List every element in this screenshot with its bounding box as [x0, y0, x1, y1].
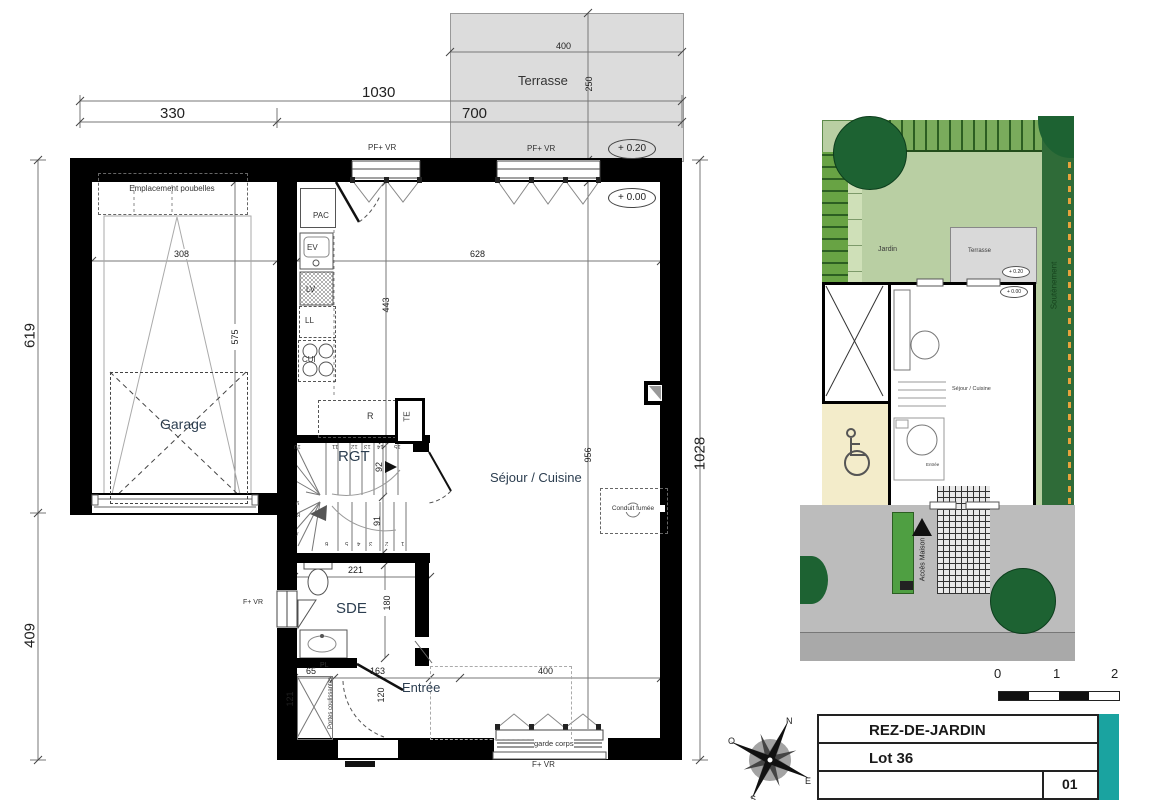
stair-num: 2	[385, 540, 388, 546]
stair-num: 6	[325, 540, 328, 546]
garage-x-box	[110, 372, 248, 504]
dim-1030: 1030	[362, 84, 395, 101]
window-label-bottom: F+ VR	[532, 760, 555, 769]
dim-120: 120	[376, 682, 386, 708]
ev-label: EV	[307, 243, 318, 252]
pac-label: PAC	[313, 211, 329, 220]
sheet-number: 01	[1062, 776, 1078, 792]
scale-seg	[999, 692, 1029, 700]
fridge-box	[318, 400, 396, 438]
dim-92: 92	[374, 456, 384, 478]
window-label-top-1: PF+ VR	[368, 143, 396, 152]
sheet-level-title: REZ-DE-JARDIN	[869, 722, 986, 739]
stair-num: 13	[364, 443, 371, 449]
stair-num: 14	[377, 443, 384, 449]
compass-n: N	[786, 716, 793, 726]
stair-num: 3	[369, 540, 372, 546]
sde-label: SDE	[336, 600, 367, 617]
dim-400-terrace: 400	[556, 41, 571, 51]
scale-bar-segments	[998, 691, 1120, 701]
dim-700: 700	[462, 105, 487, 122]
floor-plan-sheet: Jardin Terrasse + 0.20 + 0.00 Séjour / C…	[0, 0, 1149, 800]
sliding-doors-label: Portes coulissantes	[328, 672, 334, 734]
scale-tick-1: 1	[1053, 666, 1060, 681]
scale-seg	[1089, 692, 1119, 700]
living-label: Séjour / Cuisine	[490, 470, 582, 485]
dim-91: 91	[372, 510, 382, 532]
dim-956: 956	[583, 442, 593, 468]
elev-ground-oval: + 0.00	[608, 188, 656, 208]
dim-308: 308	[174, 249, 189, 259]
compass-s: S	[750, 794, 756, 800]
scale-tick-0: 0	[994, 666, 1001, 681]
stair-num: 11	[332, 443, 338, 449]
dim-250: 250	[584, 71, 594, 97]
dim-221: 221	[348, 565, 363, 575]
dim-575: 575	[230, 324, 240, 350]
guardrail-label: garde corps	[534, 739, 574, 748]
stair-num: 15	[394, 443, 401, 449]
dim-400-bottom: 400	[538, 666, 553, 676]
dim-409: 409	[22, 616, 39, 656]
rgt-label: RGT	[338, 448, 370, 465]
title-block-row-sheet: 01	[819, 772, 1097, 798]
dim-163: 163	[370, 666, 385, 676]
ll-label: LL	[305, 316, 314, 325]
elev-terrace-oval: + 0.20	[608, 139, 656, 159]
scale-tick-2: 2	[1111, 666, 1118, 681]
cui-label: CUI	[302, 355, 316, 364]
dim-180: 180	[382, 590, 392, 616]
bins-label: Emplacement poubelles	[100, 184, 244, 193]
compass-e: E	[805, 776, 811, 786]
entry-label: Entrée	[402, 680, 440, 695]
bins-box	[98, 173, 248, 215]
dim-330: 330	[160, 105, 185, 122]
entry-zone-box	[430, 666, 572, 740]
stair-num: 4	[357, 540, 360, 546]
dim-443: 443	[381, 292, 391, 318]
lv-label: LV	[306, 285, 315, 294]
title-block-teal-bar	[1099, 714, 1119, 800]
dim-619: 619	[22, 316, 39, 356]
title-block-row-level: REZ-DE-JARDIN	[819, 716, 1097, 744]
lot-number: Lot 36	[869, 750, 913, 767]
stair-num: 5	[345, 540, 348, 546]
pl-label: PL	[320, 662, 329, 669]
terrace-label: Terrasse	[518, 73, 568, 88]
scale-seg	[1029, 692, 1059, 700]
conduit-label: Conduit fumée	[601, 505, 665, 512]
sheet-number-cell: 01	[1042, 772, 1099, 798]
stair-num: 10	[294, 443, 301, 449]
scale-bar: 0 1 2	[990, 666, 1130, 706]
stair-num: 12	[351, 443, 358, 449]
stair-num: 9	[296, 499, 299, 505]
fridge-label: R	[367, 411, 374, 421]
dim-1028: 1028	[692, 432, 709, 476]
window-label-shower: F+ VR	[243, 599, 263, 606]
te-label: TE	[403, 408, 412, 426]
title-block: REZ-DE-JARDIN Lot 36 01	[817, 714, 1099, 800]
stair-num: 8	[297, 511, 300, 517]
compass-rose: N O S E	[725, 710, 815, 800]
pac-box	[300, 188, 336, 228]
scale-seg	[1059, 692, 1089, 700]
stair-num: 7	[296, 530, 299, 536]
dim-628: 628	[470, 249, 485, 259]
window-label-top-2: PF+ VR	[527, 144, 555, 153]
dim-65: 65	[306, 666, 316, 676]
garage-label: Garage	[160, 416, 207, 432]
title-block-row-lot: Lot 36	[819, 744, 1097, 772]
compass-o: O	[728, 736, 735, 746]
stair-num: 1	[401, 540, 404, 546]
dim-121: 121	[285, 686, 295, 712]
